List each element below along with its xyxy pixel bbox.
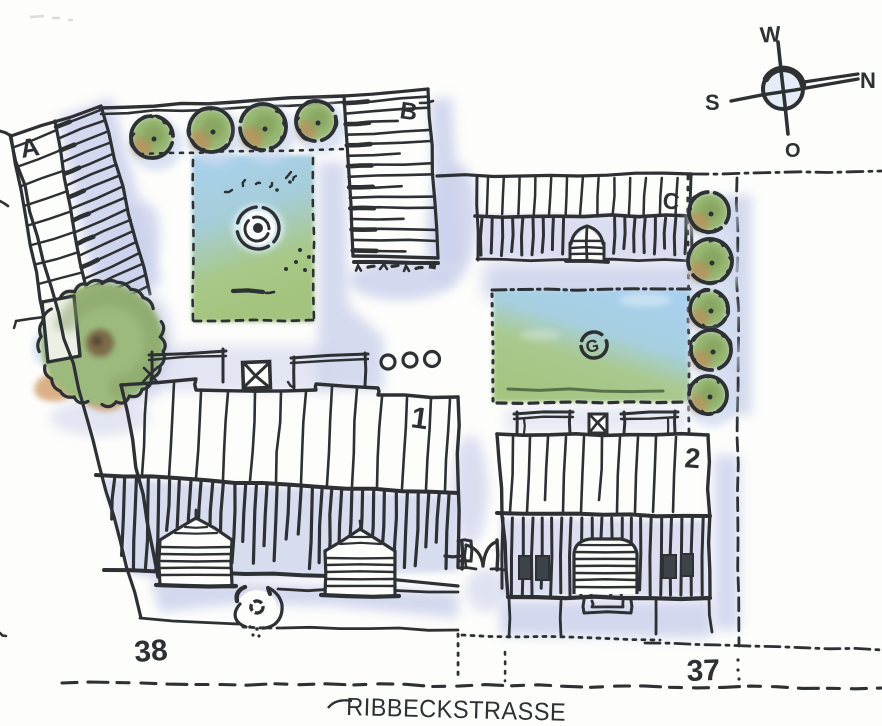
svg-text:38: 38 (133, 634, 169, 669)
svg-text:37: 37 (686, 654, 721, 688)
svg-text:RIBBECKSTRASSE: RIBBECKSTRASSE (346, 693, 567, 726)
svg-text:O: O (785, 140, 801, 162)
svg-text:2: 2 (683, 442, 701, 474)
svg-text:C: C (661, 187, 680, 215)
svg-text:N: N (860, 68, 876, 93)
svg-text:S: S (705, 90, 720, 115)
svg-text:W: W (759, 21, 782, 47)
